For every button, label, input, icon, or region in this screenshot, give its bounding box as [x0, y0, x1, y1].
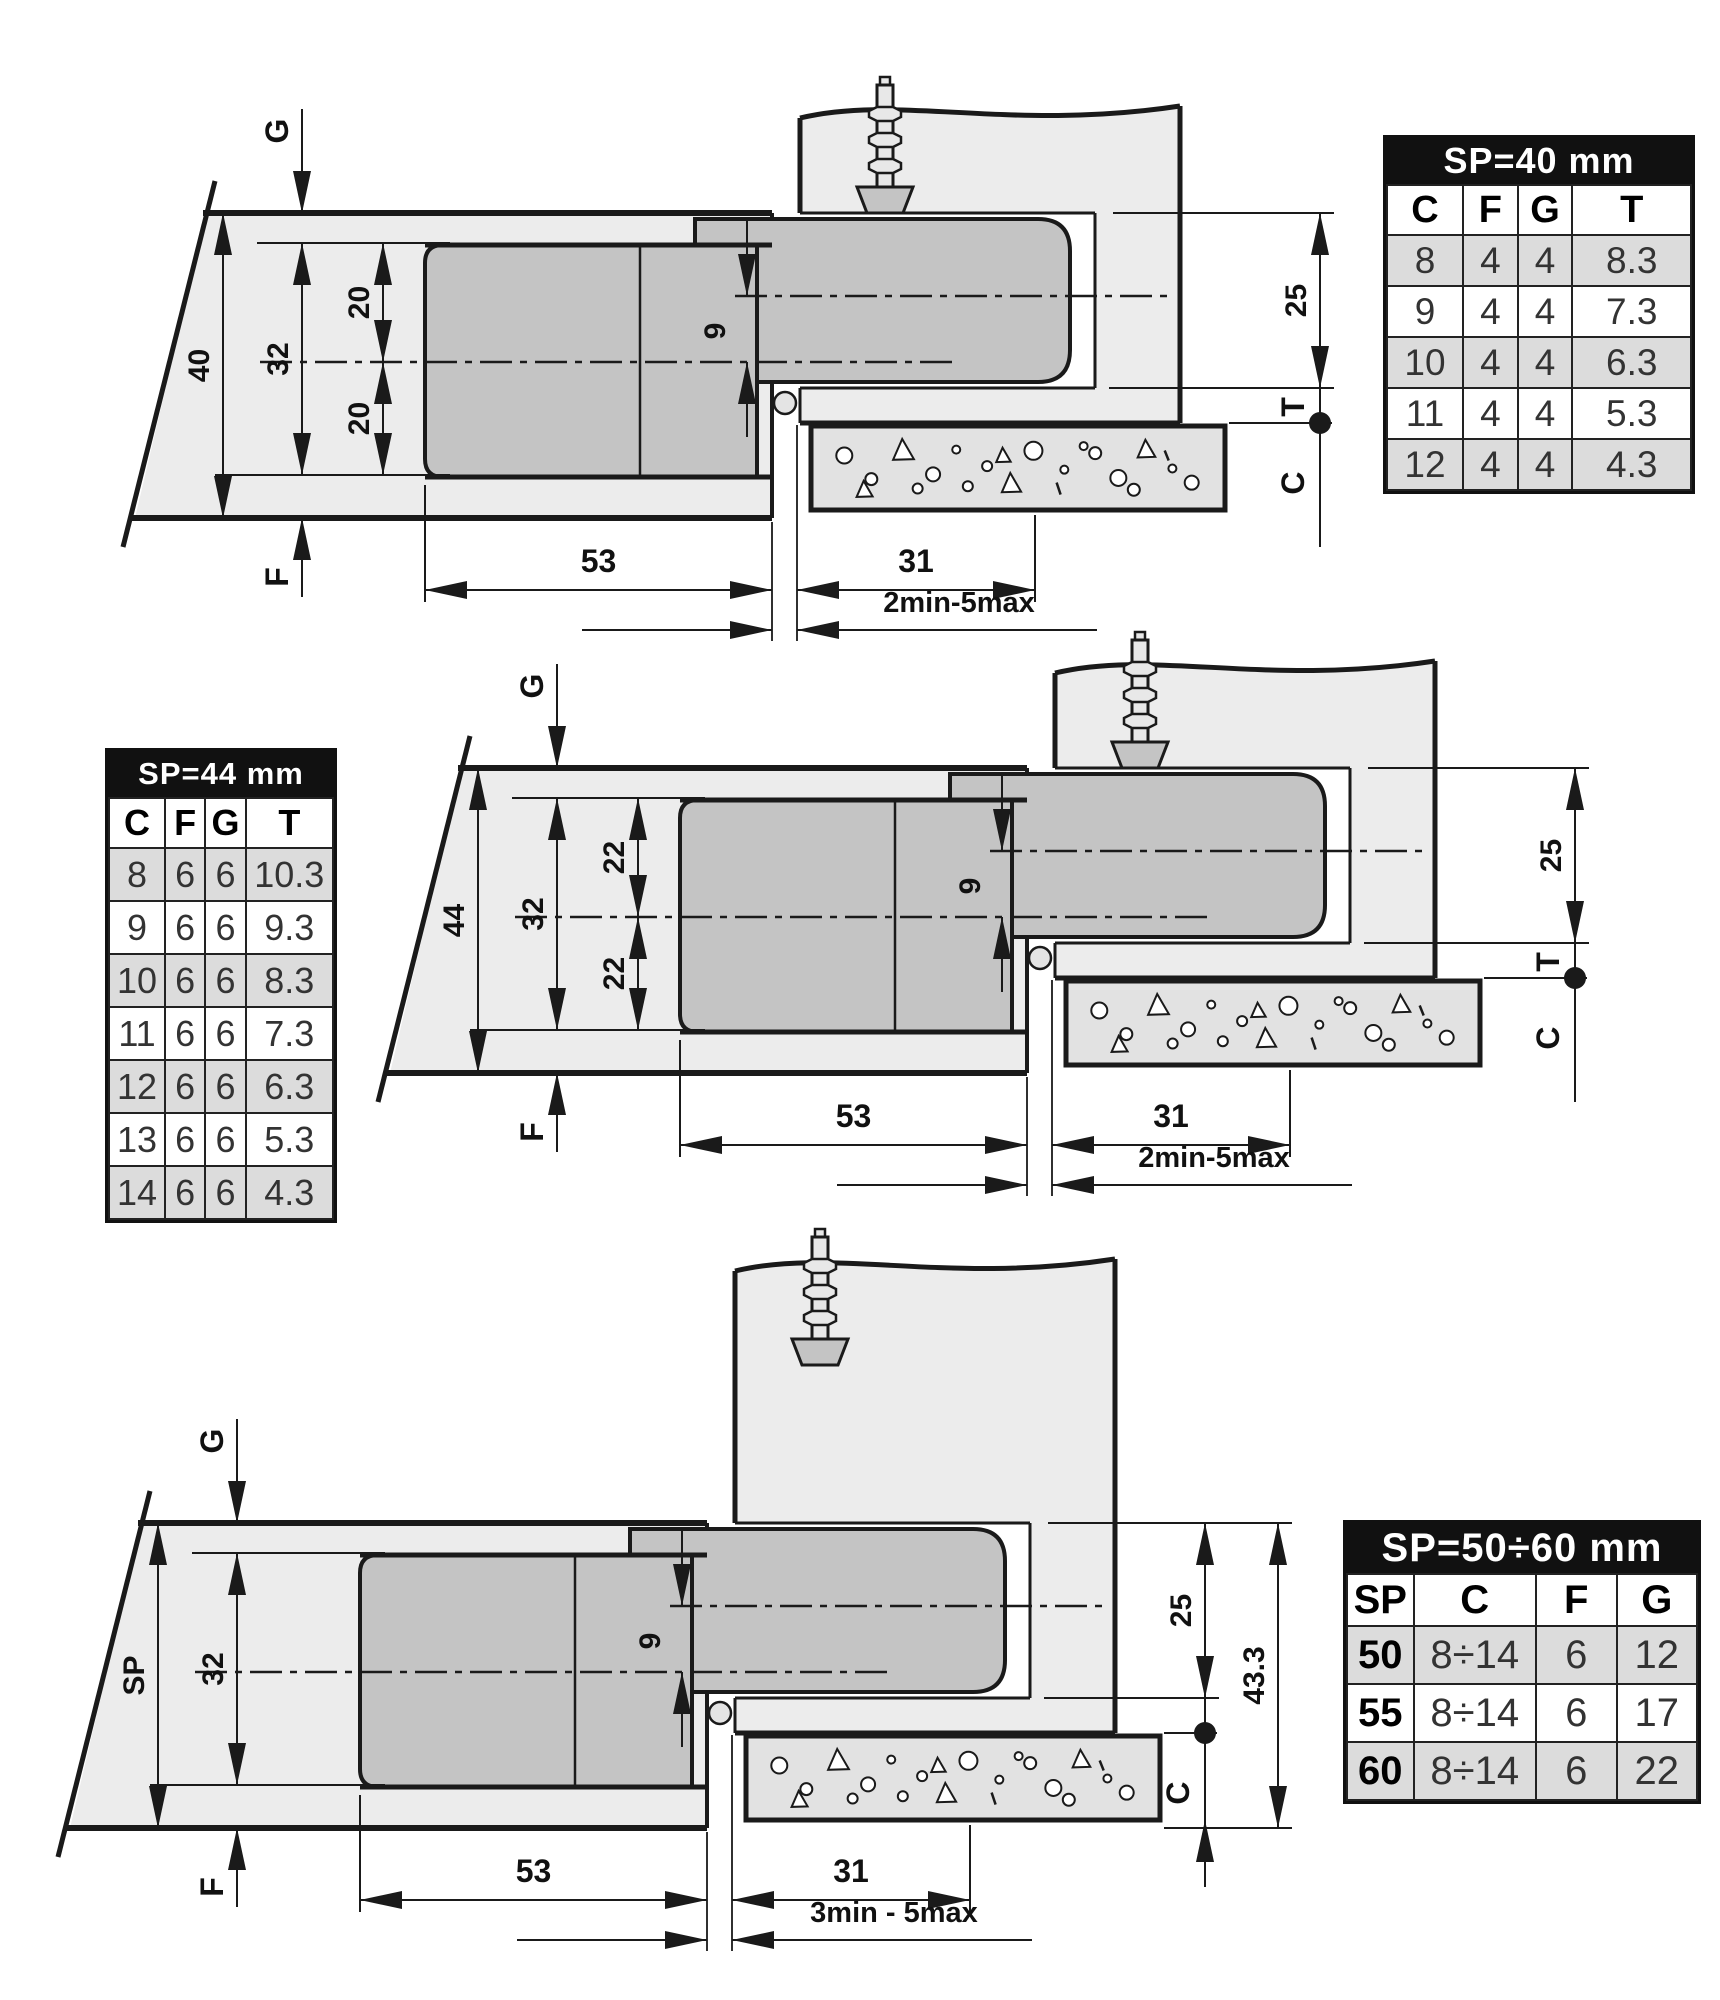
wall-aggregate: [917, 1771, 927, 1781]
dimension-arrow: [985, 1176, 1027, 1194]
wall-aggregate: [1103, 1775, 1111, 1783]
dimension-label: SP: [118, 1655, 151, 1695]
dimension-arrow: [1196, 1820, 1214, 1862]
table-cell: 13: [109, 1113, 165, 1166]
wall-aggregate: [1110, 470, 1126, 486]
wall-aggregate: [1423, 1020, 1431, 1028]
wall-aggregate: [898, 1791, 908, 1801]
table-row: 13665.3: [109, 1113, 333, 1166]
dimension-label: 20: [343, 402, 376, 435]
column-header: F: [1536, 1574, 1617, 1626]
column-header: F: [1463, 185, 1518, 235]
euro-screw-flange: [857, 187, 913, 213]
wall-aggregate: [1344, 1002, 1356, 1014]
table-cell: 12: [1387, 439, 1463, 490]
label-C: C: [1160, 1781, 1196, 1804]
dimension-arrow: [1311, 213, 1329, 255]
table-cell: 6: [165, 1007, 205, 1060]
dimension-arrow: [1269, 1523, 1287, 1565]
dimension-arrow: [548, 726, 566, 768]
dimension-arrow: [797, 621, 839, 639]
column-header: G: [1617, 1574, 1698, 1626]
table-cell: 10: [1387, 337, 1463, 388]
dimension-arrow: [1196, 1523, 1214, 1565]
table-sp40-title: SP=40 mm: [1386, 138, 1692, 184]
table-cell: 12: [1617, 1626, 1698, 1684]
label-T: T: [1275, 397, 1311, 417]
dimension-label: 25: [1535, 839, 1568, 872]
table-cell: 8: [109, 848, 165, 901]
wall-aggregate: [836, 448, 852, 464]
dimension-label: 44: [438, 904, 471, 938]
table-cell: 5.3: [1572, 388, 1691, 439]
dimension-arrow: [228, 1481, 246, 1523]
euro-screw-flange: [792, 1339, 848, 1365]
table-cell: 6: [165, 901, 205, 954]
wall-aggregate: [982, 461, 992, 471]
wall-aggregate: [1080, 442, 1088, 450]
table-cell: 4: [1463, 337, 1518, 388]
table-cell: 4: [1518, 337, 1573, 388]
table-cell: 8÷14: [1414, 1742, 1537, 1800]
table-cell: 6: [165, 848, 205, 901]
dimension-label: 9: [699, 323, 732, 340]
table-cell: 4: [1463, 439, 1518, 490]
euro-screw-thread: [1124, 688, 1156, 702]
dimension-arrow: [1269, 1786, 1287, 1828]
dimension-label: 32: [197, 1652, 230, 1685]
wall-aggregate: [963, 481, 973, 491]
dimension-label: 32: [262, 342, 295, 375]
dimension-arrow: [730, 621, 772, 639]
wall-aggregate: [1315, 1021, 1323, 1029]
euro-screw-thread: [804, 1311, 836, 1325]
dimension-label: 25: [1165, 1594, 1198, 1627]
column-header: G: [1518, 185, 1573, 235]
wall-aggregate: [1089, 447, 1101, 459]
table-cell: 4.3: [246, 1166, 333, 1219]
wall-aggregate: [913, 484, 923, 494]
dimension-label: 20: [343, 286, 376, 319]
wall-aggregate: [1128, 484, 1140, 496]
table-row: 12666.3: [109, 1060, 333, 1113]
label-G: G: [194, 1429, 230, 1454]
table-sp44: SP=44 mm CFGT86610.39669.310668.311667.3…: [105, 748, 337, 1223]
euro-screw-thread: [1124, 662, 1156, 676]
dimension-label: 40: [183, 349, 216, 382]
wall-aggregate: [771, 1758, 787, 1774]
wall-aggregate: [1024, 1757, 1036, 1769]
table-cell: 6: [205, 1007, 245, 1060]
dimension-arrow: [1052, 1136, 1094, 1154]
wall-aggregate: [1181, 1022, 1195, 1036]
table-cell: 4: [1518, 286, 1573, 337]
wall-aggregate: [1120, 1028, 1132, 1040]
dimension-arrow: [680, 1136, 722, 1154]
table-sp5060: SP=50÷60 mm SPCFG508÷14612558÷14617608÷1…: [1343, 1520, 1701, 1804]
wall-aggregate: [1168, 465, 1176, 473]
dimension-label: 22: [598, 841, 631, 874]
dimension-arrow: [1196, 1656, 1214, 1698]
wall-aggregate: [952, 446, 960, 454]
dimension-label: 9: [634, 1633, 667, 1650]
table-row: 8448.3: [1387, 235, 1691, 286]
table-cell: 6: [1536, 1626, 1617, 1684]
dimension-label: 53: [836, 1098, 872, 1134]
dimension-label: 22: [598, 957, 631, 990]
label-C: C: [1275, 471, 1311, 494]
dimension-arrow: [548, 1073, 566, 1115]
table-cell: 6: [205, 1113, 245, 1166]
dimension-arrow: [1311, 346, 1329, 388]
table-sp44-grid: CFGT86610.39669.310668.311667.312666.313…: [108, 797, 334, 1220]
dimension-label: 31: [1153, 1098, 1189, 1134]
table-cell: 4: [1518, 439, 1573, 490]
wall-aggregate: [1060, 466, 1068, 474]
table-cell: 6: [205, 1060, 245, 1113]
wall-aggregate: [848, 1794, 858, 1804]
wall-aggregate: [865, 473, 877, 485]
label-G: G: [259, 119, 295, 144]
table-cell: 17: [1617, 1684, 1698, 1742]
table-cell: 12: [109, 1060, 165, 1113]
euro-screw-thread: [804, 1259, 836, 1273]
table-cell: 11: [1387, 388, 1463, 439]
table-row: 10668.3: [109, 954, 333, 1007]
dimension-arrow: [360, 1891, 402, 1909]
column-header: C: [109, 798, 165, 848]
wall-aggregate: [1237, 1016, 1247, 1026]
dimension-label: 9: [954, 878, 987, 895]
column-header: G: [205, 798, 245, 848]
wall-aggregate: [1063, 1794, 1075, 1806]
dimension-arrow: [1566, 768, 1584, 810]
column-header: C: [1387, 185, 1463, 235]
table-cell: 7.3: [1572, 286, 1691, 337]
table-row: 9447.3: [1387, 286, 1691, 337]
table-cell: 10.3: [246, 848, 333, 901]
table-cell: 8÷14: [1414, 1626, 1537, 1684]
table-cell: 55: [1347, 1684, 1414, 1742]
table-row: 9669.3: [109, 901, 333, 954]
dimension-label: 32: [517, 897, 550, 930]
table-cell: 4: [1463, 235, 1518, 286]
euro-screw-flange: [1112, 742, 1168, 768]
table-cell: 8÷14: [1414, 1684, 1537, 1742]
dimension-label: 53: [581, 543, 617, 579]
table-cell: 4: [1518, 235, 1573, 286]
dimension-arrow: [665, 1931, 707, 1949]
dimension-arrow: [425, 581, 467, 599]
table-row: 508÷14612: [1347, 1626, 1697, 1684]
table-cell: 9: [109, 901, 165, 954]
table-cell: 7.3: [246, 1007, 333, 1060]
dimension-label: 31: [833, 1853, 869, 1889]
wall-aggregate: [1185, 476, 1199, 490]
table-cell: 10: [109, 954, 165, 1007]
hinge-pivot-pin: [774, 392, 796, 414]
table-row: 14664.3: [109, 1166, 333, 1219]
euro-screw-thread: [804, 1285, 836, 1299]
table-cell: 8: [1387, 235, 1463, 286]
wall-aggregate: [959, 1752, 977, 1770]
table-sp44-title: SP=44 mm: [108, 751, 334, 797]
table-cell: 6: [205, 1166, 245, 1219]
wall-aggregate: [1365, 1025, 1381, 1041]
table-cell: 60: [1347, 1742, 1414, 1800]
dimension-arrow: [293, 518, 311, 560]
table-row: 11445.3: [1387, 388, 1691, 439]
table-cell: 50: [1347, 1626, 1414, 1684]
label-gap: 2min-5max: [883, 587, 1035, 619]
wall-aggregate: [800, 1783, 812, 1795]
table-sp5060-grid: SPCFG508÷14612558÷14617608÷14622: [1346, 1573, 1698, 1801]
column-header: SP: [1347, 1574, 1414, 1626]
table-sp40: SP=40 mm CFGT8448.39447.310446.311445.31…: [1383, 135, 1695, 494]
label-T: T: [1530, 952, 1566, 972]
table-cell: 6: [205, 901, 245, 954]
label-G: G: [514, 674, 550, 699]
table-cell: 4: [1463, 286, 1518, 337]
column-header: T: [1572, 185, 1691, 235]
wall-aggregate: [887, 1756, 895, 1764]
label-gap: 3min - 5max: [810, 1897, 978, 1929]
drawing-sp44: G44322222F925TC53312min-5max: [378, 632, 1589, 1196]
hinge-pivot-pin: [709, 1702, 731, 1724]
table-row: 10446.3: [1387, 337, 1691, 388]
table-cell: 6: [205, 954, 245, 1007]
table-row: 558÷14617: [1347, 1684, 1697, 1742]
table-sp40-grid: CFGT8448.39447.310446.311445.312444.3: [1386, 184, 1692, 491]
table-cell: 6: [165, 1060, 205, 1113]
column-header: C: [1414, 1574, 1537, 1626]
wall-aggregate: [1015, 1752, 1023, 1760]
wall-aggregate: [1335, 997, 1343, 1005]
wall-aggregate: [861, 1777, 875, 1791]
label-gap: 2min-5max: [1138, 1142, 1290, 1174]
label-F: F: [514, 1122, 550, 1142]
dimension-arrow: [1566, 901, 1584, 943]
euro-screw-thread: [869, 133, 901, 147]
wall-aggregate: [1440, 1031, 1454, 1045]
table-row: 608÷14622: [1347, 1742, 1697, 1800]
wall-aggregate: [1218, 1036, 1228, 1046]
wall-aggregate: [1024, 442, 1042, 460]
drawing-sp5060: GSP32F925C43.353313min - 5max: [58, 1229, 1292, 1951]
dimension-arrow: [797, 581, 839, 599]
table-cell: 9.3: [246, 901, 333, 954]
table-cell: 11: [109, 1007, 165, 1060]
wall-aggregate: [1045, 1780, 1061, 1796]
dimension-arrow: [228, 1828, 246, 1870]
table-cell: 6.3: [246, 1060, 333, 1113]
wall-aggregate: [926, 467, 940, 481]
table-cell: 14: [109, 1166, 165, 1219]
euro-screw-thread: [869, 159, 901, 173]
wall-aggregate: [1091, 1003, 1107, 1019]
table-sp5060-title: SP=50÷60 mm: [1346, 1523, 1698, 1573]
euro-screw-thread: [869, 107, 901, 121]
dimension-arrow: [985, 1136, 1027, 1154]
table-cell: 6: [165, 954, 205, 1007]
column-header: F: [165, 798, 205, 848]
dimension-label: 25: [1280, 284, 1313, 317]
label-F: F: [194, 1877, 230, 1897]
dimension-arrow: [1052, 1176, 1094, 1194]
wall-aggregate: [1207, 1001, 1215, 1009]
dimension-label: 43.3: [1238, 1646, 1271, 1704]
table-cell: 8.3: [1572, 235, 1691, 286]
euro-screw-thread: [1124, 714, 1156, 728]
table-row: 11667.3: [109, 1007, 333, 1060]
hinge-technical-sheet: G40322020F925TC53312min-5maxG44322222F92…: [0, 0, 1720, 2000]
table-row: 86610.3: [109, 848, 333, 901]
wall-aggregate: [1279, 997, 1297, 1015]
table-cell: 6.3: [1572, 337, 1691, 388]
label-F: F: [259, 567, 295, 587]
table-cell: 8.3: [246, 954, 333, 1007]
dimension-arrow: [293, 171, 311, 213]
table-cell: 6: [1536, 1684, 1617, 1742]
table-cell: 4: [1463, 388, 1518, 439]
table-cell: 5.3: [246, 1113, 333, 1166]
table-cell: 9: [1387, 286, 1463, 337]
dimension-arrow: [730, 581, 772, 599]
table-cell: 6: [165, 1166, 205, 1219]
table-cell: 22: [1617, 1742, 1698, 1800]
dimension-arrow: [732, 1891, 774, 1909]
wall-aggregate: [1383, 1039, 1395, 1051]
drawing-sp40: G40322020F925TC53312min-5max: [123, 77, 1334, 641]
wall-aggregate: [995, 1776, 1003, 1784]
hinge-pivot-pin: [1029, 947, 1051, 969]
table-row: 12444.3: [1387, 439, 1691, 490]
dimension-arrow: [665, 1891, 707, 1909]
table-cell: 6: [205, 848, 245, 901]
table-cell: 4: [1518, 388, 1573, 439]
dimension-label: 31: [898, 543, 934, 579]
label-C: C: [1530, 1026, 1566, 1049]
wall-aggregate: [1120, 1786, 1134, 1800]
table-cell: 6: [165, 1113, 205, 1166]
table-cell: 4.3: [1572, 439, 1691, 490]
dimension-label: 53: [516, 1853, 552, 1889]
table-cell: 6: [1536, 1742, 1617, 1800]
column-header: T: [246, 798, 333, 848]
wall-aggregate: [1168, 1039, 1178, 1049]
dimension-arrow: [732, 1931, 774, 1949]
